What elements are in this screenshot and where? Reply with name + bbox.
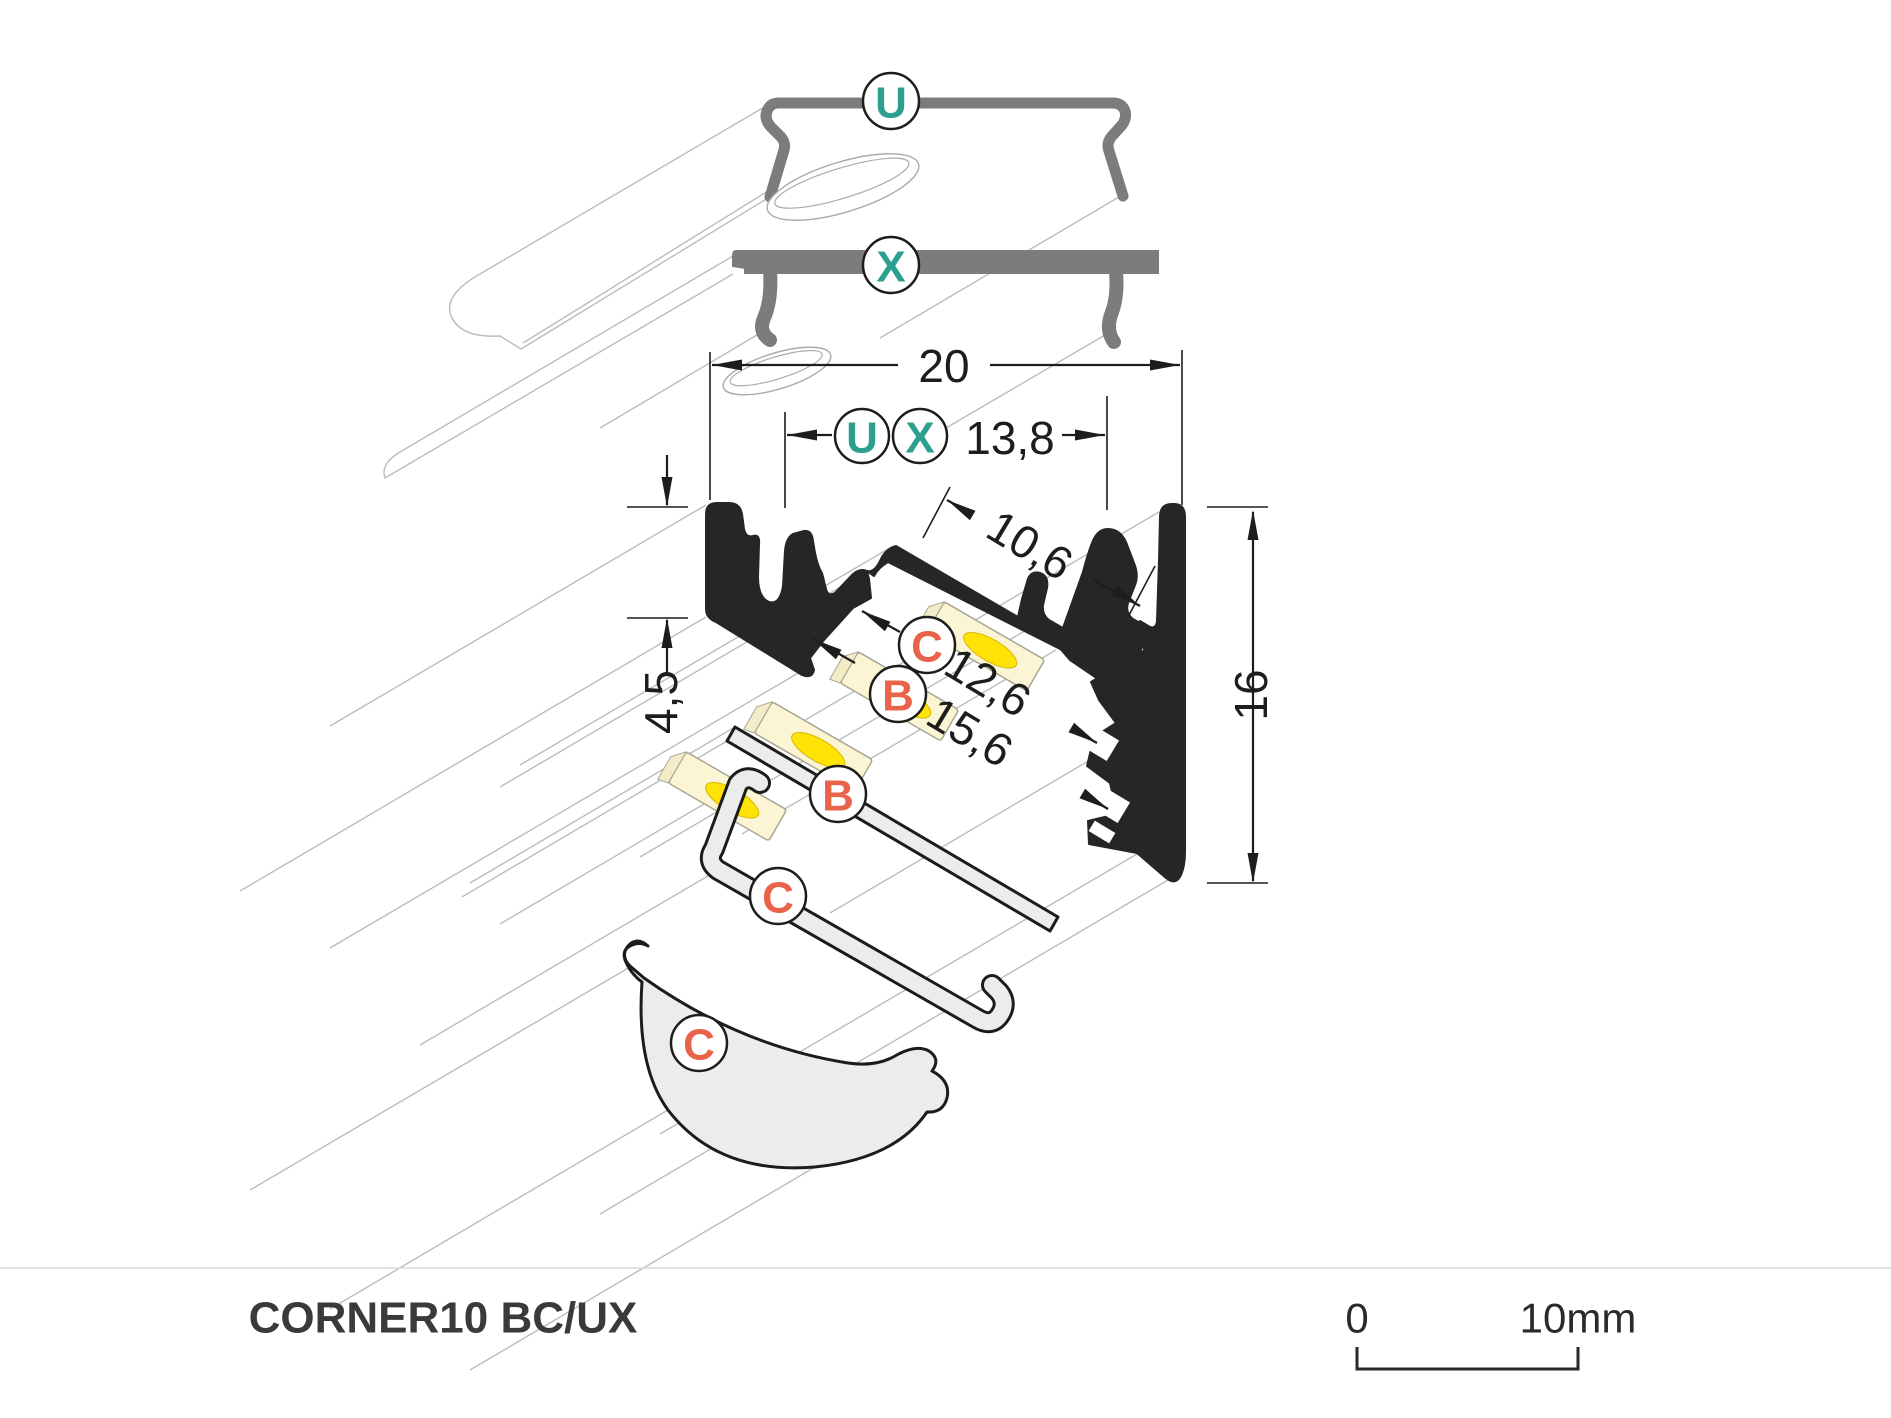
arrow-down-icon: [662, 477, 673, 507]
callout-c-diffuser: C: [671, 1015, 727, 1071]
arrow-upleft-icon: [947, 500, 976, 520]
callout-c-cover: C: [750, 868, 806, 924]
callout-letter-c: C: [762, 874, 794, 923]
callout-x-dim: X: [893, 409, 947, 463]
callout-u-dim: U: [835, 409, 889, 463]
arrow-right-icon: [1075, 430, 1105, 441]
callout-b-cover: B: [810, 766, 866, 822]
arrow-up-icon: [662, 618, 673, 648]
drawing-title: CORNER10 BC/UX: [249, 1294, 638, 1343]
scale-start-label: 0: [1345, 1295, 1368, 1342]
cover-b-trace-1: [470, 727, 735, 883]
u-bracket-body-edge: [523, 191, 768, 343]
perspective-lines: [240, 106, 1168, 1370]
callout-letter-x: X: [876, 243, 905, 292]
diffuser-trace-2: [330, 1110, 668, 1309]
profile-trace-9: [830, 760, 1090, 913]
arrow-up-icon: [1248, 510, 1259, 540]
callout-letter-b: B: [822, 772, 854, 821]
diffuser-trace-1: [250, 967, 630, 1190]
x-plate-bar: [733, 251, 1158, 273]
profile-drawing-canvas: 20 13,8 10,6 12,6 15,6 4,5 16 U X U X C: [0, 0, 1891, 1418]
arrow-left-icon: [712, 360, 742, 371]
x-plate-body-outline: [384, 256, 733, 478]
scale-bar: 0 10mm: [1345, 1295, 1636, 1370]
arrow-right-icon: [1150, 360, 1180, 371]
callout-letter-c: C: [683, 1021, 715, 1070]
arrow-down-icon: [1248, 853, 1259, 883]
scale-end-label: 10mm: [1520, 1295, 1637, 1342]
x-mounting-plate: [733, 251, 1158, 342]
x-plate-left-leg: [762, 270, 770, 340]
callout-letter-u: U: [875, 79, 907, 128]
callout-u-top: U: [863, 73, 919, 129]
callout-letter-c: C: [911, 623, 943, 672]
profile-left-wall: [706, 503, 871, 676]
dim-total-width: 20: [918, 340, 969, 392]
arrow-left-icon: [787, 430, 817, 441]
technical-drawing-page: 20 13,8 10,6 12,6 15,6 4,5 16 U X U X C: [0, 0, 1891, 1418]
dim-offset: 4,5: [635, 670, 687, 734]
scale-bracket: [1357, 1347, 1578, 1369]
arrow-upleft-icon: [862, 611, 891, 631]
u-bracket-body-outline: [450, 106, 768, 349]
callout-c-mid: C: [899, 617, 955, 673]
dim-height: 16: [1225, 669, 1277, 720]
dim-inner-width: 13,8: [965, 412, 1055, 464]
callout-b-mid: B: [870, 666, 926, 722]
callout-letter-x: X: [905, 414, 934, 463]
callout-letter-b: B: [882, 672, 914, 721]
profile-trace-2: [240, 617, 706, 891]
callout-x-top: X: [863, 237, 919, 293]
x-plate-right-leg: [1109, 272, 1117, 342]
callout-letter-u: U: [846, 414, 878, 463]
